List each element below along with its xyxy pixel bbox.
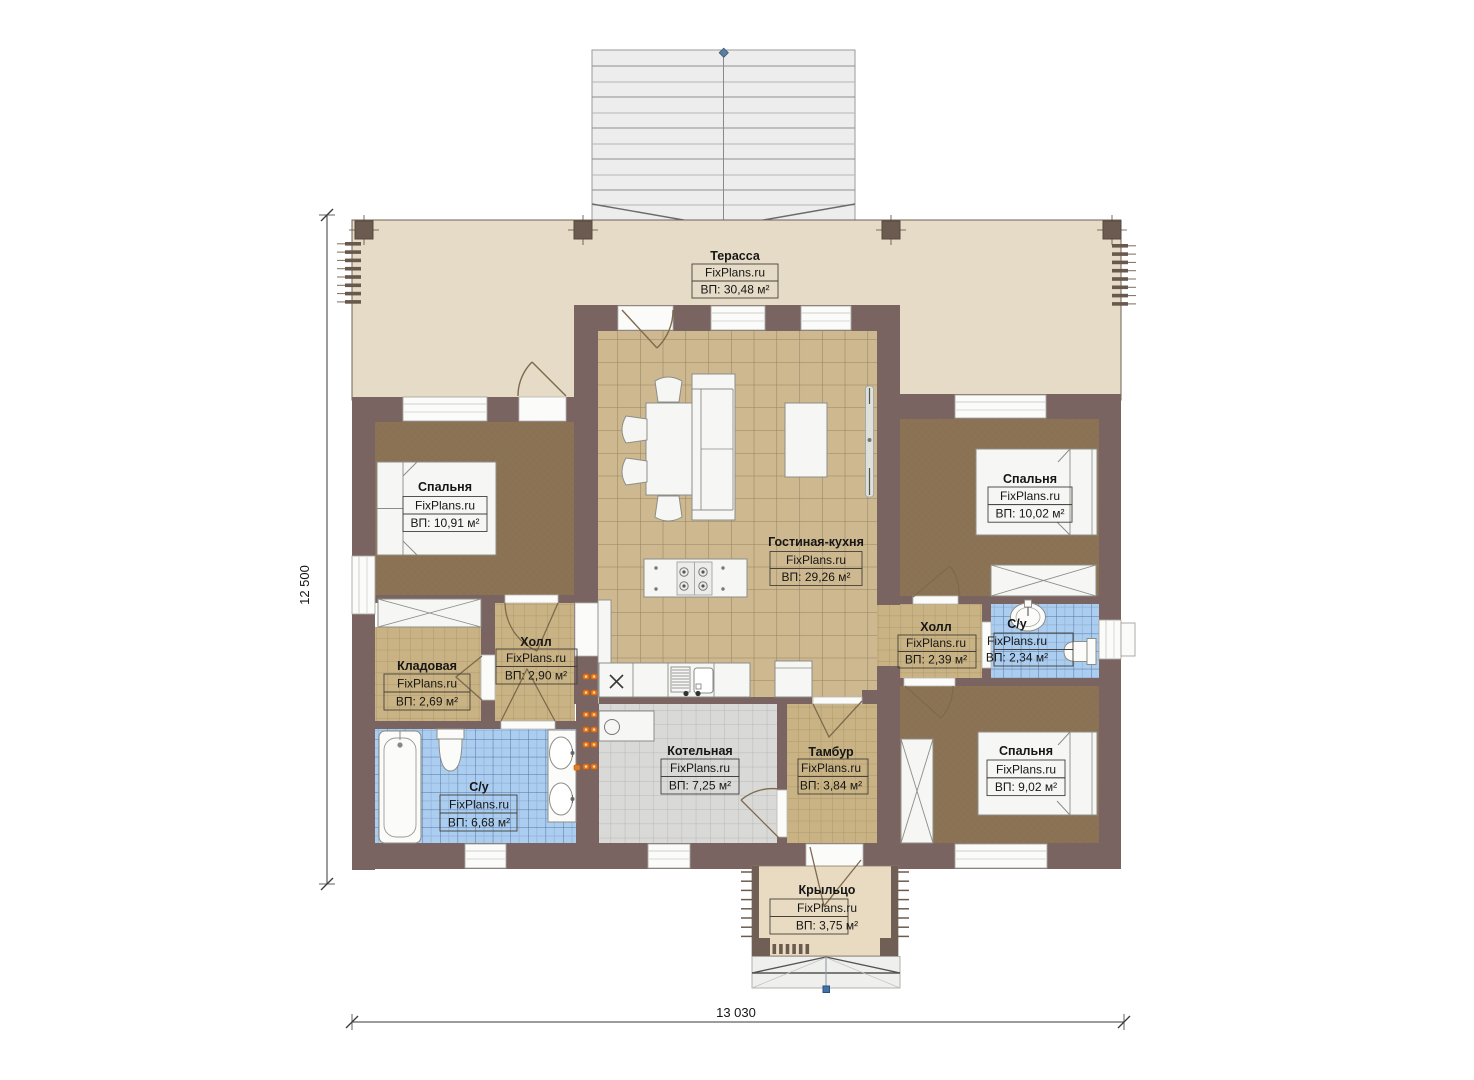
svg-text:Терасса: Терасса — [710, 249, 761, 263]
svg-text:ВП: 2,90 м²: ВП: 2,90 м² — [505, 669, 567, 683]
svg-text:FixPlans.ru: FixPlans.ru — [797, 901, 857, 915]
svg-text:Кладовая: Кладовая — [397, 659, 457, 673]
svg-text:ВП: 6,68 м²: ВП: 6,68 м² — [448, 816, 510, 830]
svg-text:Спальня: Спальня — [418, 480, 472, 494]
svg-text:ВП: 30,48 м²: ВП: 30,48 м² — [701, 283, 770, 297]
svg-text:FixPlans.ru: FixPlans.ru — [987, 634, 1047, 648]
svg-text:FixPlans.ru: FixPlans.ru — [801, 761, 861, 775]
svg-text:FixPlans.ru: FixPlans.ru — [449, 798, 509, 812]
svg-text:FixPlans.ru: FixPlans.ru — [506, 651, 566, 665]
svg-text:FixPlans.ru: FixPlans.ru — [996, 762, 1056, 776]
svg-text:ВП: 3,84 м²: ВП: 3,84 м² — [800, 779, 862, 793]
svg-text:С/у: С/у — [469, 780, 489, 794]
svg-text:Крыльцо: Крыльцо — [799, 883, 856, 897]
svg-text:13 030: 13 030 — [716, 1005, 756, 1020]
svg-text:FixPlans.ru: FixPlans.ru — [906, 636, 966, 650]
svg-text:ВП: 2,34 м²: ВП: 2,34 м² — [986, 651, 1048, 665]
svg-text:FixPlans.ru: FixPlans.ru — [415, 499, 475, 513]
svg-text:Спальня: Спальня — [1003, 472, 1057, 486]
svg-text:FixPlans.ru: FixPlans.ru — [670, 761, 730, 775]
svg-text:FixPlans.ru: FixPlans.ru — [397, 677, 457, 691]
svg-text:FixPlans.ru: FixPlans.ru — [1000, 489, 1060, 503]
svg-text:ВП: 2,69 м²: ВП: 2,69 м² — [396, 695, 458, 709]
svg-text:ВП: 10,91 м²: ВП: 10,91 м² — [411, 516, 480, 530]
svg-text:Спальня: Спальня — [999, 744, 1053, 758]
svg-text:Котельная: Котельная — [667, 744, 732, 758]
svg-text:12 500: 12 500 — [297, 565, 312, 605]
svg-text:ВП: 3,75 м²: ВП: 3,75 м² — [796, 919, 858, 933]
svg-text:ВП: 10,02 м²: ВП: 10,02 м² — [996, 507, 1065, 521]
svg-text:Тамбур: Тамбур — [808, 745, 854, 759]
svg-text:С/у: С/у — [1007, 617, 1027, 631]
svg-text:Гостиная-кухня: Гостиная-кухня — [768, 535, 864, 549]
svg-text:ВП: 7,25 м²: ВП: 7,25 м² — [669, 779, 731, 793]
svg-text:FixPlans.ru: FixPlans.ru — [705, 266, 765, 280]
svg-text:Холл: Холл — [520, 635, 551, 649]
svg-text:FixPlans.ru: FixPlans.ru — [786, 553, 846, 567]
svg-text:ВП: 2,39 м²: ВП: 2,39 м² — [905, 653, 967, 667]
svg-text:Холл: Холл — [920, 620, 951, 634]
svg-text:ВП: 29,26 м²: ВП: 29,26 м² — [782, 570, 851, 584]
svg-text:ВП: 9,02 м²: ВП: 9,02 м² — [995, 780, 1057, 794]
